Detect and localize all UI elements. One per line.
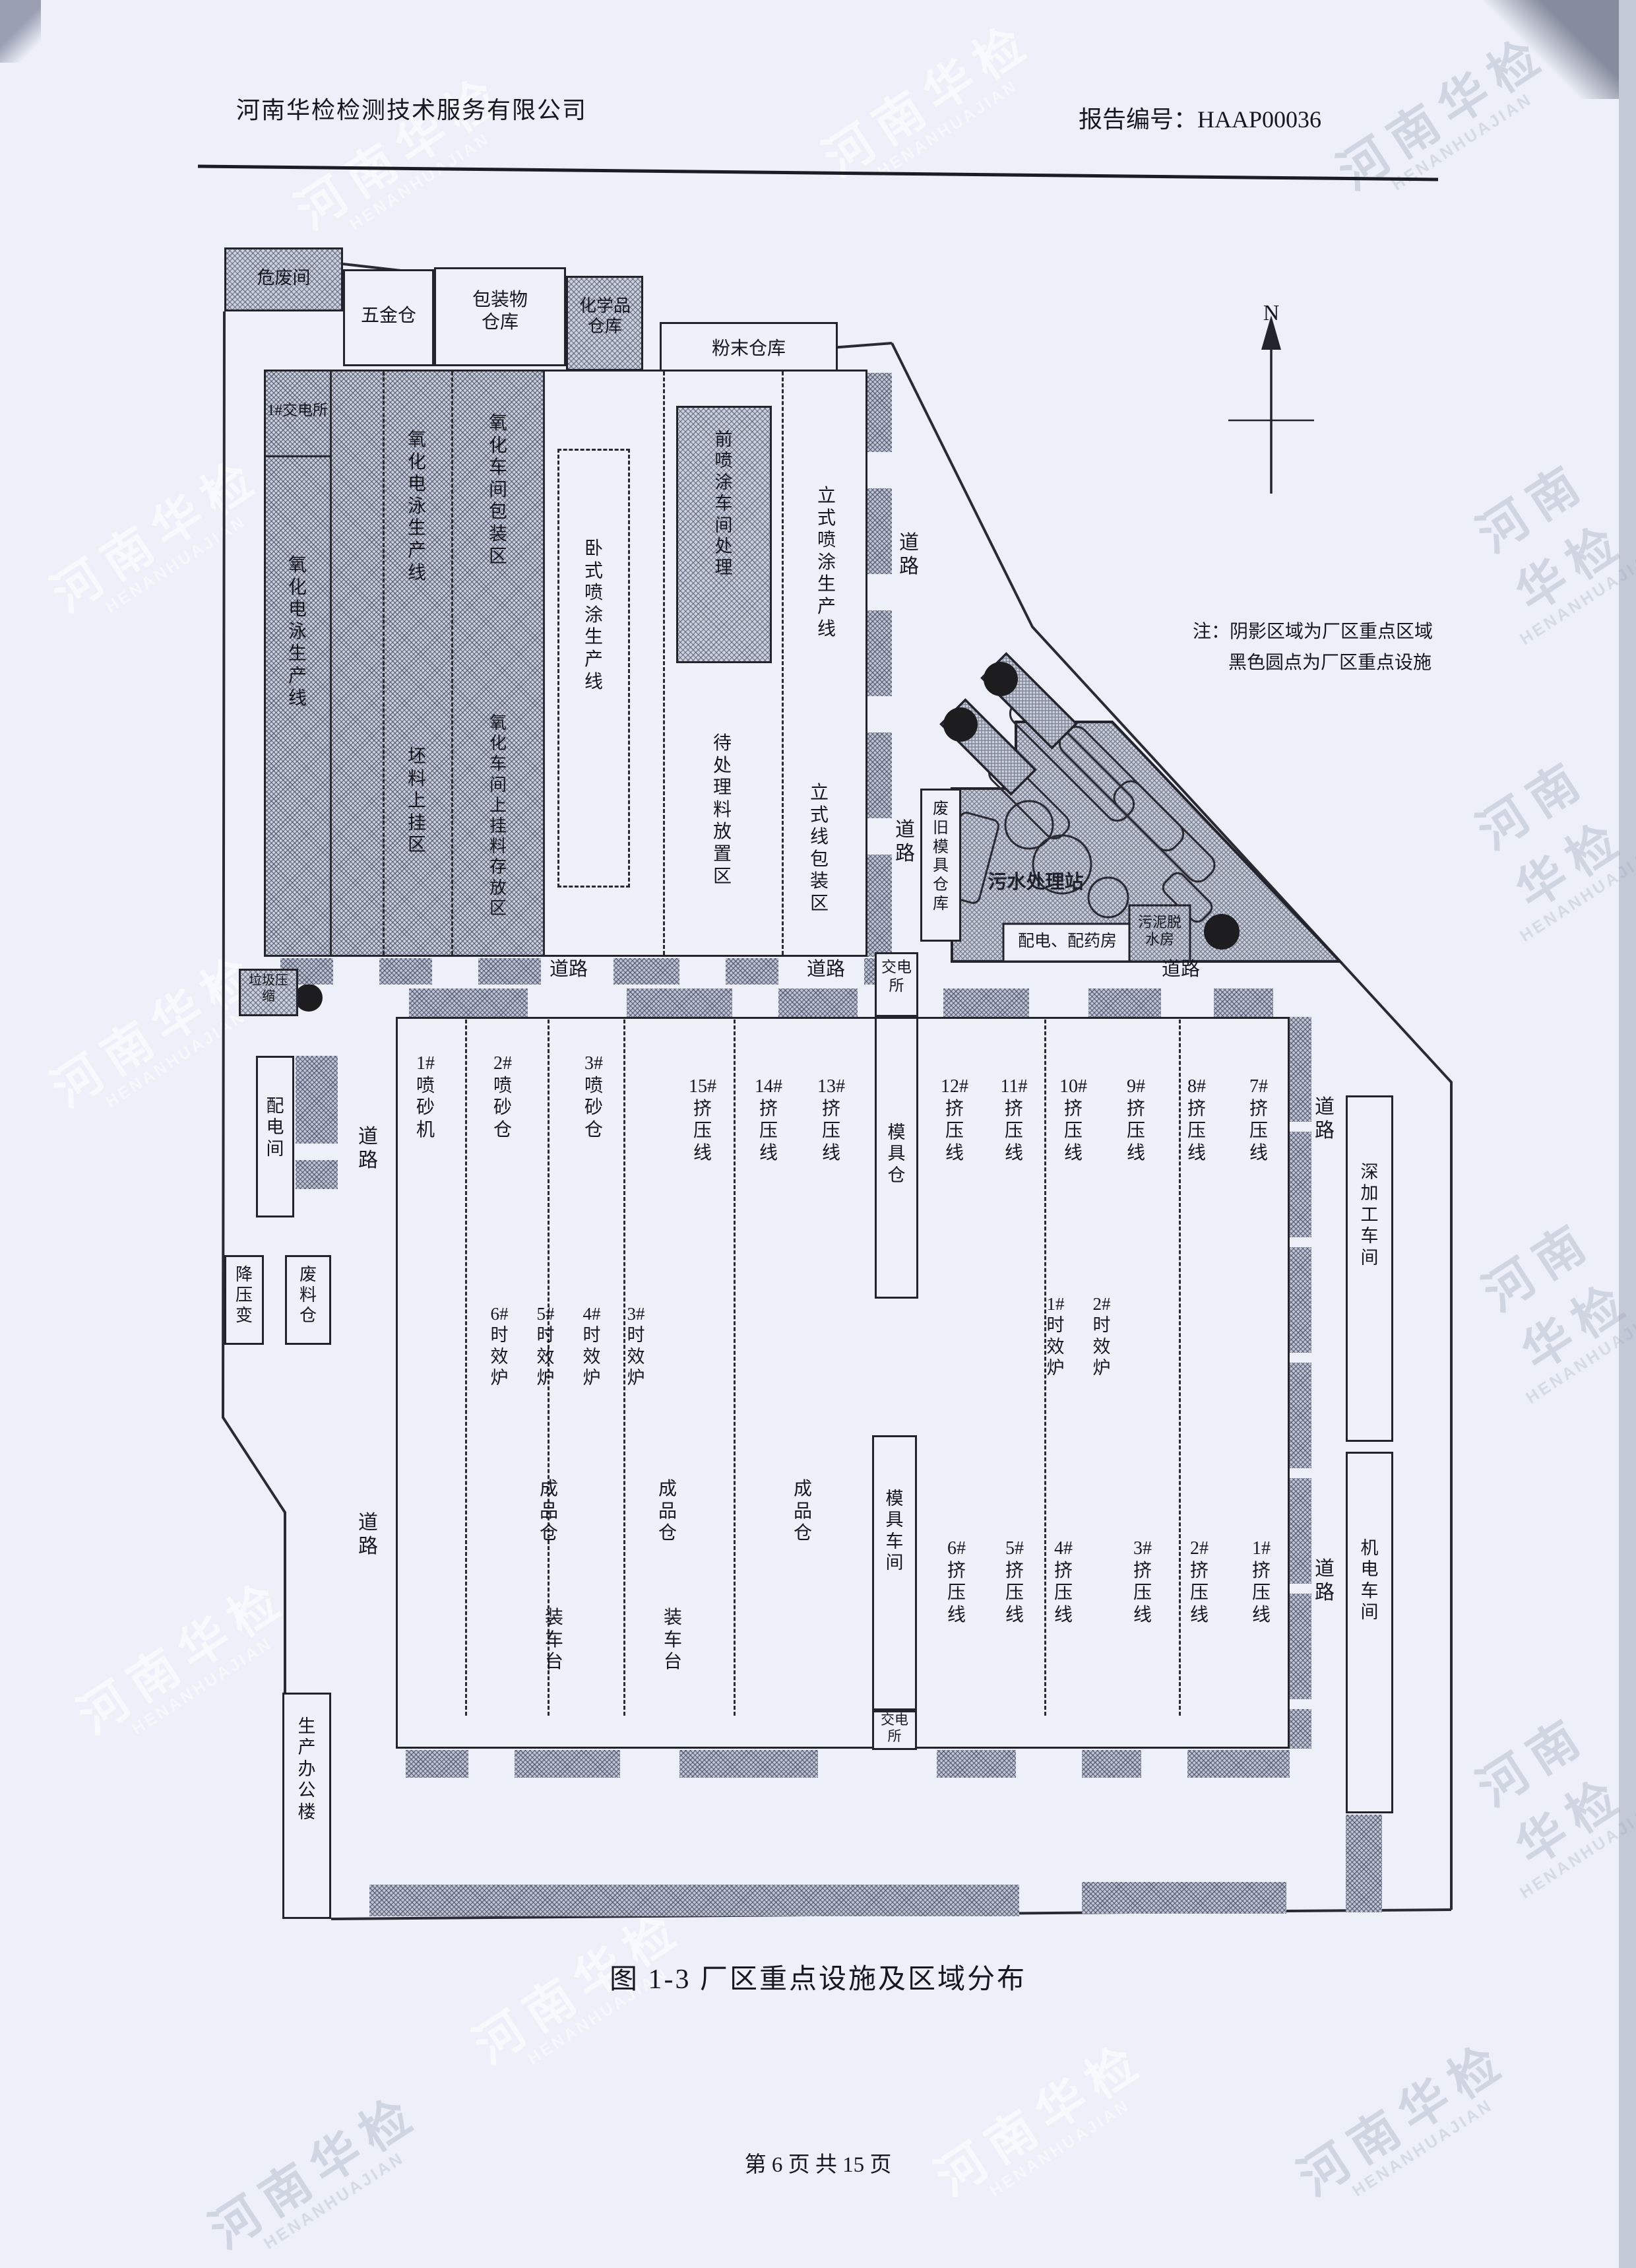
divider bbox=[330, 372, 332, 955]
sewage-station-label: 污水处理站 bbox=[988, 871, 1083, 894]
page-number: 第 6 页 共 15 页 bbox=[745, 2153, 892, 2179]
extrusion-line-14: 14# 挤 压 线 bbox=[755, 1076, 782, 1164]
footing-hatch bbox=[1082, 1750, 1141, 1778]
footing-hatch bbox=[627, 988, 732, 1017]
extrusion-line-6: 6# 挤 压 线 bbox=[947, 1538, 966, 1626]
scanned-report-page: 河南华检HENANHUAJIAN 河南华检HENANHUAJIAN 河南华检HE… bbox=[0, 0, 1636, 2268]
boundary-hatch-strip bbox=[369, 1885, 1019, 1916]
waste-mold-warehouse-label: 废 旧 模 具 仓 库 bbox=[933, 800, 949, 914]
divider-dashed bbox=[1179, 1020, 1181, 1716]
aging-furnace-2: 2# 时 效 炉 bbox=[1093, 1293, 1111, 1379]
scan-corner-shadow-topright bbox=[1484, 0, 1636, 99]
wall-hatch bbox=[1290, 1478, 1311, 1584]
finished-goods-warehouse: 成 品 仓 bbox=[658, 1478, 677, 1545]
step-down-transformer-label: 降 压 变 bbox=[236, 1264, 253, 1326]
divider bbox=[543, 372, 545, 955]
powder-warehouse-label: 粉末仓库 bbox=[712, 338, 786, 360]
divider-dashed bbox=[623, 1020, 625, 1716]
road-label: 道 路 bbox=[895, 818, 915, 866]
watermark: 河南华检HENANHUAJIAN bbox=[1442, 727, 1636, 946]
footing-hatch bbox=[515, 1750, 620, 1778]
oxidation-electrophoresis-line-label: 氧 化 电 泳 生 产 线 bbox=[288, 554, 307, 709]
hazardous-waste-room-label: 危废间 bbox=[257, 267, 311, 288]
watermark: 河南华检HENANHUAJIAN bbox=[1442, 1683, 1636, 1903]
production-office-building-label: 生 产 办 公 楼 bbox=[298, 1716, 316, 1823]
horizontal-spray-line-label: 卧 式 喷 涂 生 产 线 bbox=[584, 538, 603, 693]
chemical-warehouse-label: 化学品 仓库 bbox=[579, 296, 631, 337]
road-label: 道 路 bbox=[358, 1511, 378, 1559]
road-label: 道路 bbox=[550, 958, 588, 981]
watermark: 河南华检HENANHUAJIAN bbox=[280, 54, 525, 254]
watermark: 河南华检HENANHUAJIAN bbox=[36, 932, 281, 1132]
extrusion-line-1: 1# 挤 压 线 bbox=[1252, 1538, 1271, 1626]
substation-label: 交电 所 bbox=[881, 958, 912, 994]
packaging-warehouse-label: 包装物 仓库 bbox=[472, 289, 528, 333]
corner-hatch-block bbox=[1346, 1815, 1382, 1912]
extrusion-line-13: 13# 挤 压 线 bbox=[817, 1076, 845, 1164]
road-label: 道 路 bbox=[358, 1125, 378, 1173]
scan-corner-shadow-topleft bbox=[0, 0, 41, 63]
wall-hatch bbox=[1290, 1709, 1311, 1749]
deep-processing-workshop-label: 深 加 工 车 间 bbox=[1361, 1161, 1379, 1268]
sludge-dewater-label: 污泥脱 水房 bbox=[1138, 914, 1181, 949]
vertical-spray-line-label: 立 式 喷 涂 生 产 线 bbox=[817, 485, 836, 640]
footing-hatch bbox=[409, 988, 528, 1017]
mold-workshop-label: 模 具 车 间 bbox=[886, 1488, 904, 1574]
deep-processing-workshop bbox=[1346, 1095, 1393, 1442]
divider bbox=[266, 455, 330, 457]
divider-dashed bbox=[663, 372, 665, 955]
watermark: 河南华检HENANHUAJIAN bbox=[807, 1, 1053, 201]
divider-dashed bbox=[465, 1020, 467, 1716]
divider-dashed bbox=[451, 372, 453, 955]
extrusion-line-5: 5# 挤 压 线 bbox=[1005, 1538, 1024, 1626]
wall-hatch bbox=[1290, 1363, 1311, 1468]
footing-hatch bbox=[679, 1750, 818, 1778]
finished-goods-warehouse: 成 品 仓 bbox=[794, 1478, 812, 1545]
pending-material-area-label: 待 处 理 料 放 置 区 bbox=[713, 732, 732, 888]
finished-goods-warehouse: 成 品 仓 bbox=[540, 1478, 558, 1545]
divider-dashed bbox=[383, 372, 385, 955]
vertical-line-packing-label: 立 式 线 包 装 区 bbox=[810, 782, 829, 915]
waste-compactor-label: 垃圾压 缩 bbox=[249, 973, 288, 1004]
note-line1: 注：阴影区域为厂区重点区域 bbox=[1193, 617, 1433, 643]
wall-hatch bbox=[1290, 1247, 1311, 1353]
aging-furnace-6: 6# 时 效 炉 bbox=[491, 1303, 509, 1389]
aging-furnace-5: 5# 时 效 炉 bbox=[537, 1303, 555, 1389]
wall-hatch bbox=[1290, 1017, 1311, 1122]
wall-hatch bbox=[867, 373, 892, 452]
divider-dashed bbox=[782, 372, 784, 955]
power-distribution-room-label: 配 电 间 bbox=[267, 1095, 284, 1159]
wall-hatch bbox=[1290, 1132, 1311, 1237]
wall-hatch bbox=[867, 488, 892, 574]
blank-hanging-area-label: 坯 料 上 挂 区 bbox=[408, 746, 426, 857]
loading-platform: 装 车 台 bbox=[545, 1607, 563, 1673]
extrusion-line-11: 11# 挤 压 线 bbox=[1001, 1076, 1028, 1164]
watermark: 河南华检HENANHUAJIAN bbox=[36, 437, 281, 637]
wall-hatch bbox=[867, 610, 892, 696]
wall-hatch bbox=[867, 855, 892, 957]
mold-warehouse-label: 模 具 仓 bbox=[888, 1122, 906, 1186]
footing-hatch bbox=[406, 1750, 468, 1778]
report-number: 报告编号：HAAP00036 bbox=[1079, 100, 1321, 135]
extrusion-line-12: 12# 挤 压 线 bbox=[941, 1076, 968, 1164]
waste-material-bin-label: 废 料 仓 bbox=[299, 1264, 317, 1326]
road-label: 道 路 bbox=[899, 531, 919, 579]
footing-hatch bbox=[937, 1750, 1016, 1778]
footing-hatch bbox=[478, 958, 541, 985]
boundary-hatch-strip bbox=[1082, 1882, 1286, 1914]
footing-hatch bbox=[1187, 1750, 1290, 1778]
footing-hatch bbox=[943, 988, 1029, 1017]
footing-hatch bbox=[1214, 988, 1273, 1017]
pre-spray-treatment-label: 前 喷 涂 车 间 处 理 bbox=[715, 429, 733, 579]
oxidation-packing-area-label: 氧 化 车 间 包 装 区 bbox=[489, 412, 507, 567]
company-name: 河南华检检测技术服务有限公司 bbox=[236, 91, 587, 125]
extrusion-line-3: 3# 挤 压 线 bbox=[1133, 1538, 1152, 1626]
electromechanical-workshop-label: 机 电 车 间 bbox=[1361, 1538, 1379, 1623]
road-label: 道路 bbox=[1162, 958, 1200, 981]
wall-hatch bbox=[867, 732, 892, 818]
aging-furnace-1: 1# 时 效 炉 bbox=[1047, 1293, 1065, 1379]
watermark: 河南华检HENANHUAJIAN bbox=[1282, 2021, 1528, 2220]
aging-furnace-3: 3# 时 效 炉 bbox=[627, 1303, 645, 1389]
compass bbox=[1228, 315, 1314, 494]
footing-hatch bbox=[778, 988, 858, 1017]
loading-platform: 装 车 台 bbox=[664, 1607, 682, 1673]
footing-hatch bbox=[613, 958, 679, 985]
road-label: 道 路 bbox=[1315, 1557, 1335, 1605]
key-facility-rotated-boxes bbox=[941, 654, 1077, 794]
sandblast-bin-3: 3# 喷 砂 仓 bbox=[584, 1053, 603, 1141]
extrusion-line-10: 10# 挤 压 线 bbox=[1059, 1076, 1087, 1164]
substation-1-label: 1#交电所 bbox=[266, 401, 329, 420]
watermark: 河南华检HENANHUAJIAN bbox=[194, 2073, 439, 2268]
oxidation-material-storage-label: 氧 化 车 间 上 挂 料 存 放 区 bbox=[489, 713, 507, 919]
substation-2-label: 交电 所 bbox=[881, 1712, 908, 1745]
wall-hatch bbox=[296, 1160, 338, 1189]
power-drug-room-label: 配电、配药房 bbox=[1018, 932, 1117, 952]
wall-hatch bbox=[1290, 1594, 1311, 1699]
extrusion-line-2: 2# 挤 压 线 bbox=[1190, 1538, 1209, 1626]
wall-hatch bbox=[296, 1056, 338, 1144]
extrusion-line-15: 15# 挤 压 线 bbox=[689, 1076, 716, 1164]
footing-hatch bbox=[726, 958, 778, 985]
hardware-warehouse-label: 五金仓 bbox=[361, 305, 416, 327]
extrusion-line-4: 4# 挤 压 线 bbox=[1054, 1538, 1073, 1626]
watermark: 河南华检HENANHUAJIAN bbox=[920, 2021, 1165, 2220]
sandblast-bin-2: 2# 喷 砂 仓 bbox=[493, 1053, 512, 1141]
aging-furnace-4: 4# 时 效 炉 bbox=[583, 1303, 601, 1389]
figure-caption: 图 1-3 厂区重点设施及区域分布 bbox=[610, 1963, 1026, 1996]
divider-dashed bbox=[734, 1020, 736, 1716]
sandblast-machine-1: 1# 喷 砂 机 bbox=[416, 1053, 435, 1141]
road-label: 道 路 bbox=[1315, 1095, 1335, 1143]
extrusion-line-8: 8# 挤 压 线 bbox=[1187, 1076, 1206, 1164]
watermark: 河南华检HENANHUAJIAN bbox=[1449, 1188, 1636, 1408]
extrusion-line-9: 9# 挤 压 线 bbox=[1127, 1076, 1145, 1164]
extrusion-line-7: 7# 挤 压 线 bbox=[1249, 1076, 1268, 1164]
note-line2: 黑色圆点为厂区重点设施 bbox=[1228, 648, 1431, 674]
road-label: 道路 bbox=[807, 958, 845, 981]
footing-hatch bbox=[379, 958, 432, 985]
footing-hatch bbox=[1088, 988, 1161, 1017]
compass-north-label: N bbox=[1263, 300, 1280, 327]
scan-edge-band-right bbox=[1619, 0, 1636, 2268]
electromechanical-workshop bbox=[1346, 1452, 1393, 1813]
watermark: 河南华检HENANHUAJIAN bbox=[1442, 430, 1636, 649]
watermark: 河南华检HENANHUAJIAN bbox=[62, 1559, 307, 1759]
oxidation-electrophoresis-line-label: 氧 化 电 泳 生 产 线 bbox=[408, 429, 426, 584]
